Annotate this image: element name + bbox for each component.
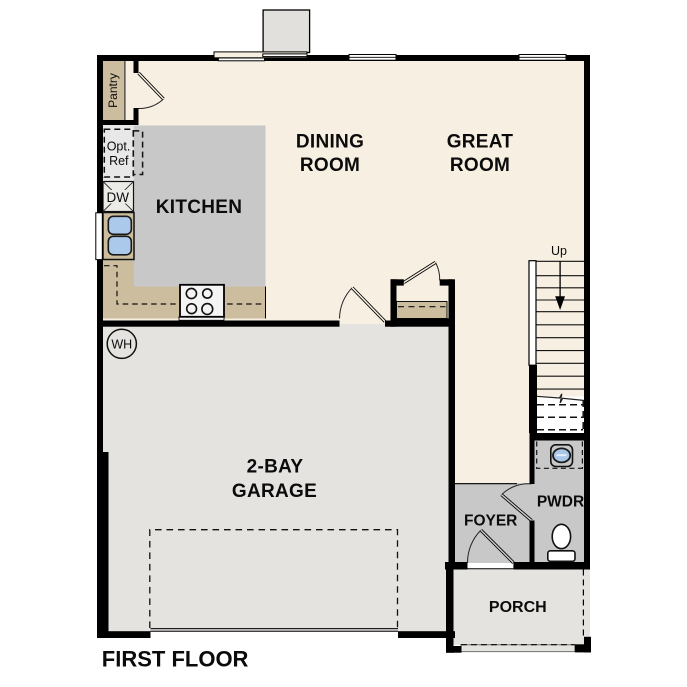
svg-text:ROOM: ROOM xyxy=(300,155,360,176)
svg-text:DINING: DINING xyxy=(296,131,364,152)
svg-text:Opt.: Opt. xyxy=(107,140,131,154)
svg-text:Up: Up xyxy=(551,244,567,258)
svg-text:Pantry: Pantry xyxy=(106,73,120,108)
svg-text:PORCH: PORCH xyxy=(489,599,547,616)
svg-text:GREAT: GREAT xyxy=(447,131,514,152)
svg-text:ROOM: ROOM xyxy=(450,155,510,176)
svg-text:FIRST FLOOR: FIRST FLOOR xyxy=(102,646,249,671)
svg-text:FOYER: FOYER xyxy=(464,513,517,530)
svg-text:WH: WH xyxy=(111,337,132,351)
svg-text:2-BAY: 2-BAY xyxy=(247,457,304,478)
svg-text:GARAGE: GARAGE xyxy=(232,481,317,502)
svg-text:Ref: Ref xyxy=(109,154,129,168)
svg-text:PWDR: PWDR xyxy=(537,493,584,510)
svg-text:KITCHEN: KITCHEN xyxy=(156,197,243,218)
svg-text:DW: DW xyxy=(107,190,130,205)
